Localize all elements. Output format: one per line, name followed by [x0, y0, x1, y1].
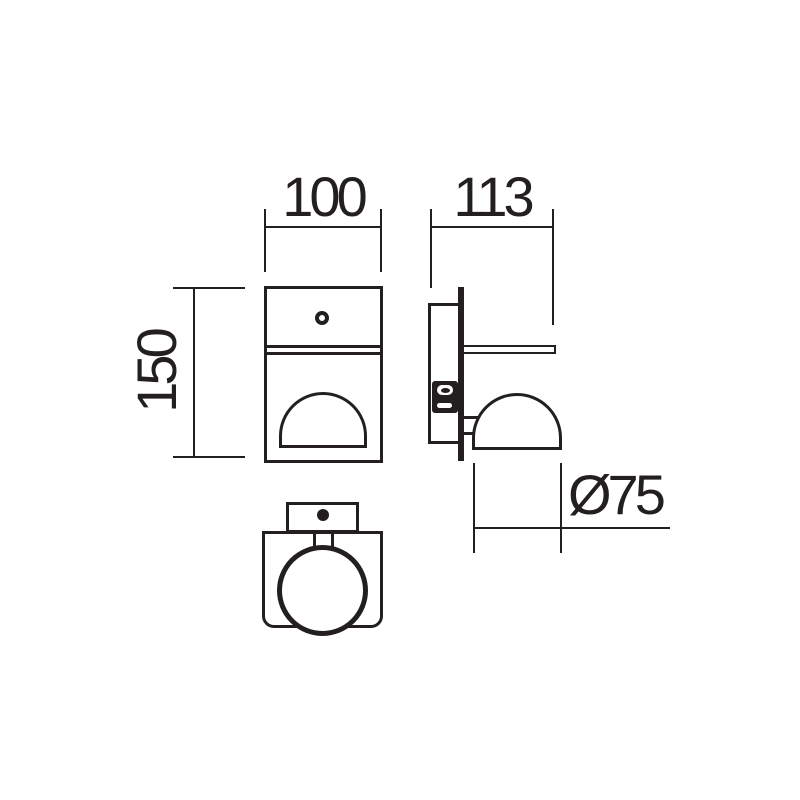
dim-diameter-extension-left	[473, 463, 475, 553]
dim-diameter-extension-right	[560, 463, 562, 553]
bottom-view-screw-icon	[317, 509, 329, 521]
front-view-divider-line-bottom	[264, 352, 383, 355]
side-view-arm	[462, 345, 556, 354]
dim-diameter-label: Ø75	[568, 467, 680, 523]
dim-height-line	[193, 288, 195, 458]
dim-height-tick-bottom	[173, 456, 245, 458]
dimension-drawing-canvas: 100 113 150 Ø75	[0, 0, 800, 800]
switch-lower-slot	[437, 403, 452, 408]
dim-width-label: 100	[263, 169, 383, 225]
dim-height-label: 150	[129, 302, 185, 442]
dim-diameter-line	[473, 527, 670, 529]
dim-depth-label: 113	[430, 169, 554, 225]
dim-height-tick-top	[173, 287, 245, 289]
side-view-power-switch-icon	[432, 381, 458, 413]
front-view-divider-line-top	[264, 345, 383, 348]
front-view-screw-icon	[315, 311, 329, 325]
side-view-lamp-dome	[472, 393, 562, 450]
switch-rocker-knob	[441, 388, 450, 393]
side-view-body-outline	[428, 303, 462, 444]
bottom-view-lamp-dome-circle	[277, 545, 368, 636]
